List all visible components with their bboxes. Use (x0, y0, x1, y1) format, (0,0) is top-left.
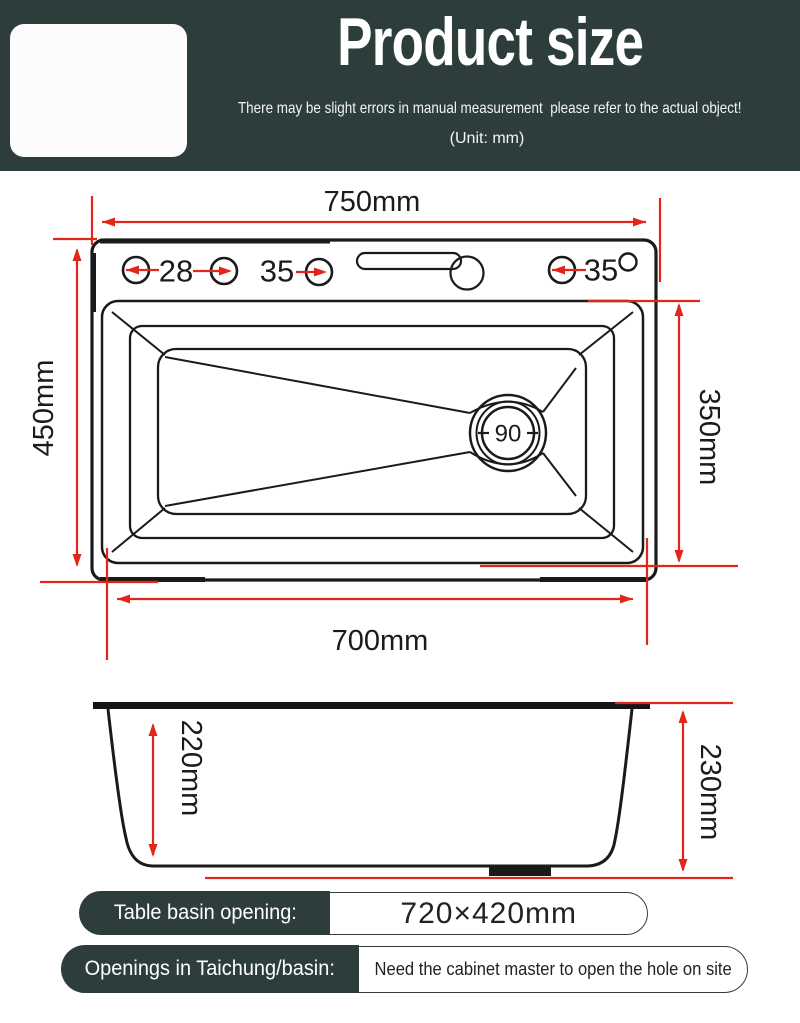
hole-left-label: 28 (159, 254, 193, 289)
basin-bottom (158, 349, 586, 514)
drain-diameter-label: 90 (495, 421, 522, 448)
openings-value: Need the cabinet master to open the hole… (359, 959, 747, 980)
dim-overall-height: 230mm (679, 710, 727, 872)
faucet-slot (357, 253, 461, 269)
dim-bottom-width: 700mm (107, 538, 647, 660)
product-size-sheet: Product size There may be slight errors … (0, 0, 800, 1023)
dim-230-label: 230mm (694, 744, 726, 841)
basin-rim (102, 301, 643, 563)
small-hole-circle (620, 254, 637, 271)
top-view: 90 28 35 35 (28, 186, 738, 660)
table-basin-opening-value: 720×420mm (330, 897, 647, 931)
faucet-slot-bulb (451, 257, 484, 290)
openings-label: Openings in Taichung/basin: (61, 945, 358, 993)
dim-450-label: 450mm (28, 360, 60, 457)
drain: 90 (470, 395, 546, 471)
dim-220-label: 220mm (175, 720, 207, 817)
dim-700-label: 700mm (332, 625, 429, 657)
faucet-holes: 28 35 35 (123, 253, 637, 290)
openings-row: Openings in Taichung/basin: Need the cab… (62, 946, 748, 993)
hole-right-label: 35 (584, 253, 618, 288)
hole-mid-label: 35 (260, 254, 294, 289)
sink-rim-bar (93, 702, 650, 709)
sink-technical-drawing: 90 28 35 35 (0, 0, 800, 1023)
dim-inner-height: 220mm (149, 720, 208, 857)
dim-750-label: 750mm (324, 186, 421, 218)
table-basin-opening-label: Table basin opening: (79, 891, 330, 935)
side-view: 220mm 230mm (93, 702, 733, 878)
basin-wall-top (130, 326, 614, 538)
table-basin-opening-row: Table basin opening: 720×420mm (80, 892, 648, 935)
dim-350-label: 350mm (693, 389, 725, 486)
sink-outer-edge (92, 240, 656, 580)
drain-fitting (489, 866, 551, 876)
dim-overall-width: 750mm (53, 186, 660, 282)
